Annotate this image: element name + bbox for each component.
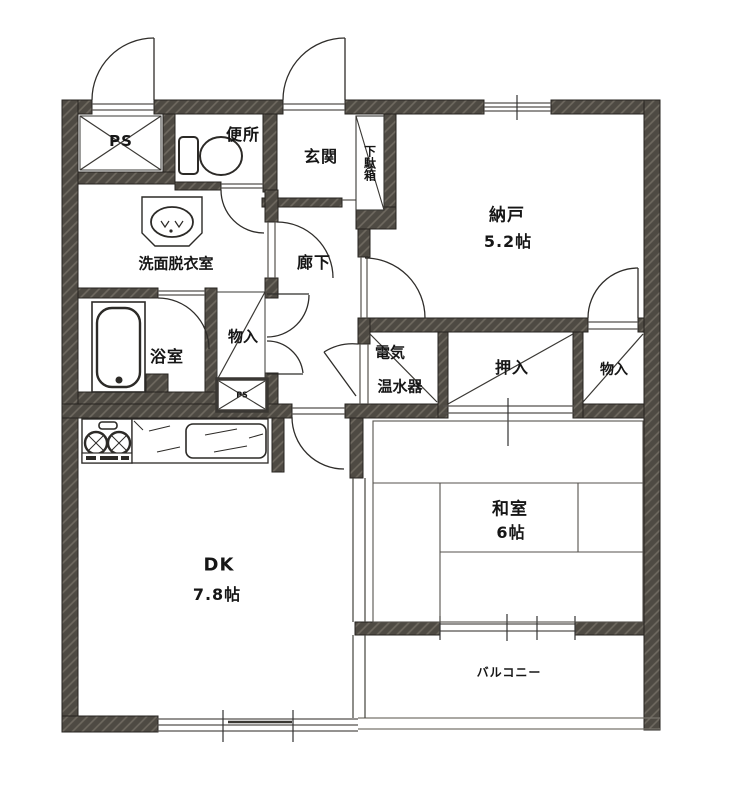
shoe-cabinet-label: 下駄箱 <box>362 145 379 181</box>
kitchen-counter <box>132 419 268 463</box>
water-heater-label-line1: 電気 <box>375 342 405 363</box>
dk-size: 7.8帖 <box>193 581 241 605</box>
room-divider-lines <box>353 478 365 718</box>
floorplan-drawing <box>0 0 734 800</box>
oshiire-label: 押入 <box>495 354 529 378</box>
bathtub-icon <box>92 302 145 392</box>
bathroom-label: 浴室 <box>150 343 184 367</box>
ps-top-label: PS <box>109 132 133 150</box>
balcony-railing <box>358 718 660 729</box>
toilet-label: 便所 <box>226 121 260 145</box>
storage-right-label: 物入 <box>600 359 628 379</box>
floorplan-page: PS 便所 玄関 下駄箱 納戸 5.2帖 洗面脱衣室 廊下 浴室 物入 PS 電… <box>0 0 734 800</box>
washroom-label: 洗面脱衣室 <box>138 253 213 274</box>
storage-room-label: 納戸 <box>489 201 525 226</box>
washitsu-label: 和室 <box>492 495 528 520</box>
storage-room-size: 5.2帖 <box>484 228 532 252</box>
hall-closet-label: 物入 <box>228 326 258 347</box>
balcony-label: バルコニー <box>477 664 542 681</box>
entrance-label: 玄関 <box>304 143 338 167</box>
dk-label: DK <box>204 555 235 576</box>
ps-small-label: PS <box>236 391 248 400</box>
washitsu-size: 6帖 <box>496 519 525 543</box>
water-heater-label-line2: 温水器 <box>377 376 422 397</box>
sink-icon <box>142 197 202 246</box>
stove-icon <box>82 419 132 463</box>
hallway-label: 廊下 <box>297 249 331 273</box>
